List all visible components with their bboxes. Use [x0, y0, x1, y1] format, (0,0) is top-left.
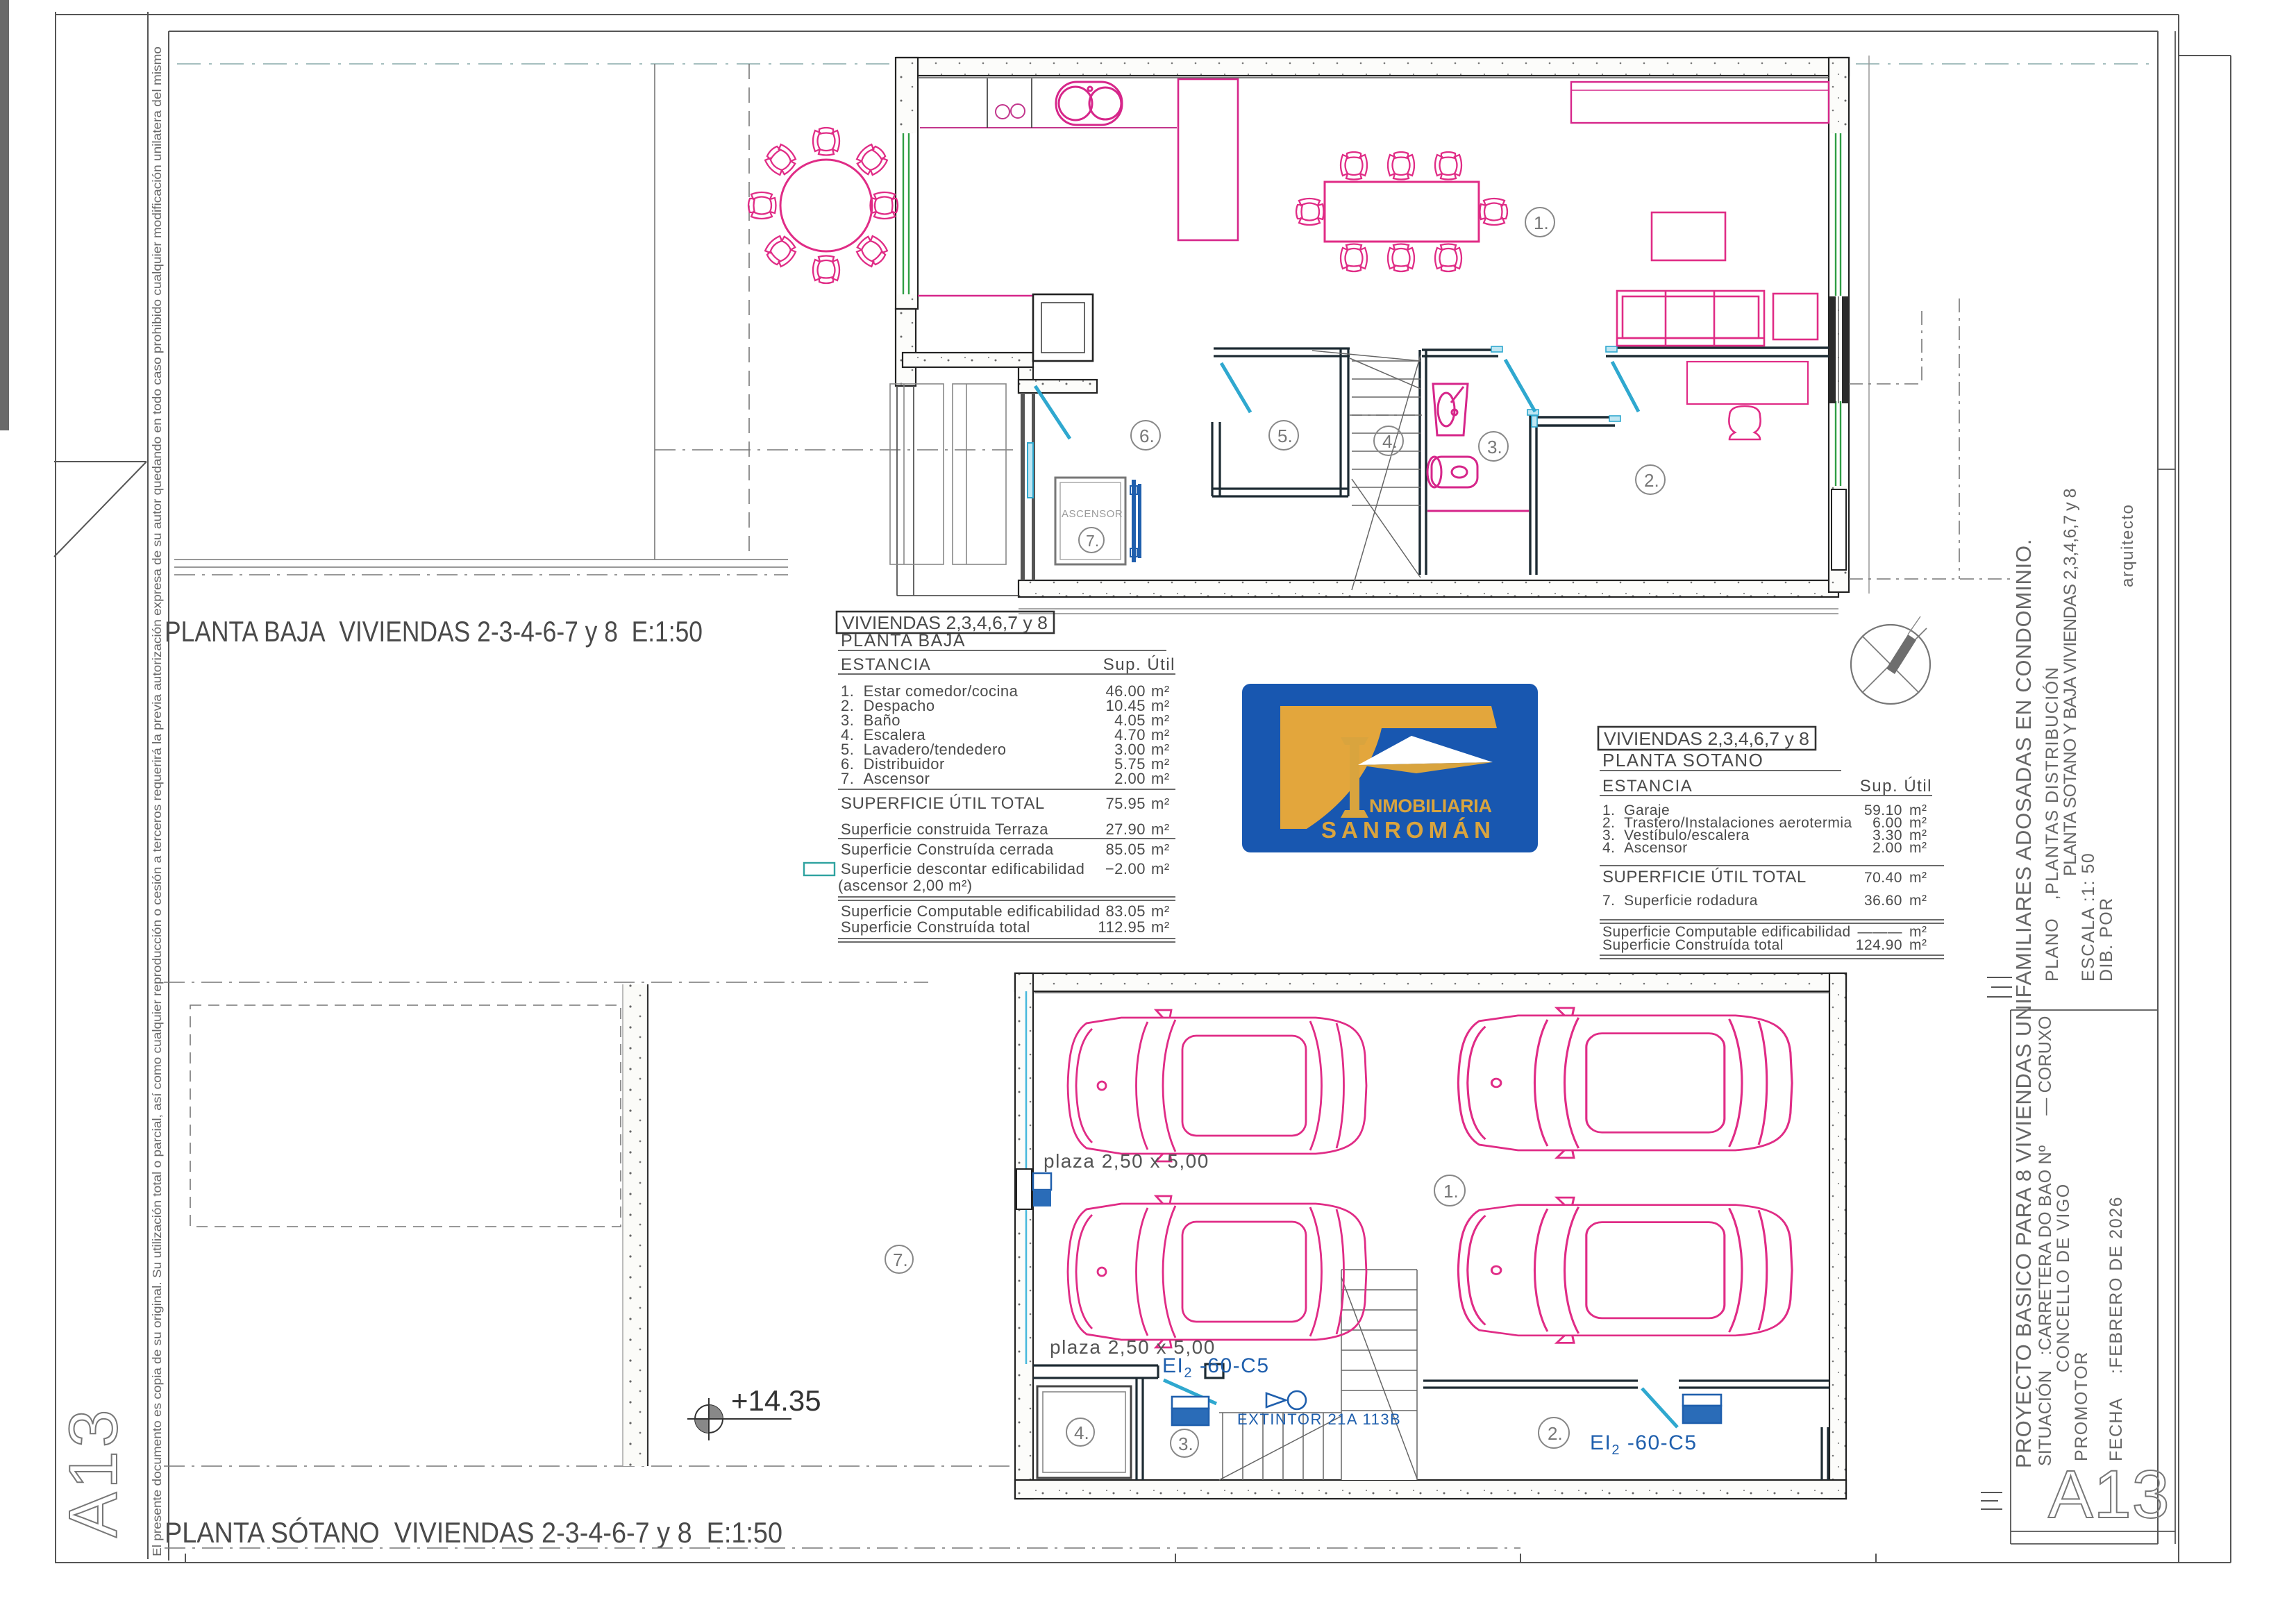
svg-text:SUPERFICIE ÚTIL TOTAL: SUPERFICIE ÚTIL TOTAL [841, 794, 1045, 813]
svg-text:3.: 3. [1178, 1433, 1193, 1454]
svg-text:m²: m² [1909, 840, 1927, 856]
svg-text:FECHA :FEBRERO DE 2026: FECHA :FEBRERO DE 2026 [2106, 1196, 2126, 1461]
svg-text:arquitecto: arquitecto [2118, 504, 2137, 587]
svg-text:Sup. Útil: Sup. Útil [1103, 655, 1175, 674]
svg-text:4.: 4. [1382, 431, 1398, 452]
svg-text:VIVIENDAS 2,3,4,6,7 y 8: VIVIENDAS 2,3,4,6,7 y 8 [1604, 728, 1809, 749]
svg-text:7.: 7. [1086, 532, 1099, 550]
svg-text:2.: 2. [1548, 1423, 1563, 1444]
svg-text:m²: m² [1151, 918, 1170, 936]
svg-text:EI2 -60-C5: EI2 -60-C5 [1162, 1354, 1270, 1381]
svg-text:EI2 -60-C5: EI2 -60-C5 [1590, 1431, 1698, 1458]
svg-text:7. Ascensor: 7. Ascensor [841, 770, 930, 787]
svg-text:Superficie construida Terraza: Superficie construida Terraza [841, 821, 1048, 838]
svg-text:CONCELLO DE VIGO: CONCELLO DE VIGO [2054, 1183, 2073, 1372]
svg-text:A13: A13 [2048, 1456, 2170, 1532]
svg-text:SITUACIÓN :CARRETERA DO BAO: SITUACIÓN :CARRETERA DO BAO Nº — CORUXO [2035, 1015, 2055, 1466]
svg-text:Superficie Construída total: Superficie Construída total [841, 918, 1030, 936]
svg-text:PLANO ,PLANTAS DISTRIBUCIÓN: PLANO ,PLANTAS DISTRIBUCIÓN [2042, 666, 2062, 982]
svg-text:m²: m² [1909, 870, 1927, 886]
svg-text:m²: m² [1151, 821, 1170, 838]
svg-text:PROMOTOR: PROMOTOR [2072, 1351, 2091, 1461]
svg-text:4.: 4. [1074, 1422, 1089, 1443]
svg-text:Superficie Construída cerrada: Superficie Construída cerrada [841, 841, 1054, 858]
svg-text:PLANTA BAJA: PLANTA BAJA [841, 631, 966, 650]
svg-text:El presente documento es copia: El presente documento es copia de su ori… [150, 47, 164, 1556]
svg-text:2.00: 2.00 [1872, 840, 1902, 856]
svg-text:(ascensor 2,00 m²): (ascensor 2,00 m²) [838, 877, 973, 894]
svg-text:PROYECTO BASICO PARA 8 VIVIEND: PROYECTO BASICO PARA 8 VIVIENDAS UNIFAMI… [2011, 538, 2036, 1468]
svg-text:2.00: 2.00 [1114, 770, 1146, 787]
svg-text:4. Ascensor: 4. Ascensor [1602, 840, 1688, 856]
svg-text:plaza 2,50 x 5,00: plaza 2,50 x 5,00 [1050, 1336, 1216, 1358]
svg-text:ESTANCIA: ESTANCIA [1602, 777, 1693, 796]
svg-text:−2.00: −2.00 [1105, 860, 1146, 877]
svg-text:A13: A13 [55, 1406, 131, 1538]
svg-text:Superficie descontar edificabi: Superficie descontar edificabilidad [841, 860, 1084, 877]
svg-text:ESTANCIA: ESTANCIA [841, 655, 931, 674]
svg-text:1.: 1. [1534, 212, 1549, 233]
svg-text:3.: 3. [1487, 437, 1502, 457]
svg-text:SUPERFICIE ÚTIL TOTAL: SUPERFICIE ÚTIL TOTAL [1602, 868, 1807, 886]
svg-text:PLANTA SOTANO Y BAJA VIVIENDAS: PLANTA SOTANO Y BAJA VIVIENDAS 2,3,4,6,7… [2061, 487, 2080, 876]
svg-text:ESCALA :1: 50: ESCALA :1: 50 [2079, 852, 2098, 982]
svg-text:NMOBILIARIA: NMOBILIARIA [1369, 796, 1493, 816]
svg-text:m²: m² [1909, 893, 1927, 909]
svg-text:7. Superficie rodadura: 7. Superficie rodadura [1602, 893, 1758, 909]
svg-text:m²: m² [1151, 841, 1170, 858]
svg-text:PLANTA SOTANO: PLANTA SOTANO [1602, 750, 1763, 771]
svg-text:75.95: 75.95 [1105, 795, 1146, 812]
svg-text:DIB. POR: DIB. POR [2097, 897, 2116, 982]
svg-text:112.95: 112.95 [1098, 918, 1146, 936]
svg-text:1.: 1. [1443, 1181, 1459, 1202]
svg-text:27.90: 27.90 [1105, 821, 1146, 838]
svg-text:PLANTA SÓTANO VIVIENDAS 2-3-4: PLANTA SÓTANO VIVIENDAS 2-3-4-6-7 y 8 E:… [165, 1516, 782, 1549]
svg-text:83.05: 83.05 [1105, 902, 1146, 920]
svg-text:EXTINTOR 21A 113B: EXTINTOR 21A 113B [1237, 1411, 1401, 1428]
svg-text:m²: m² [1151, 795, 1170, 812]
svg-text:Superficie Construída total: Superficie Construída total [1602, 937, 1784, 953]
svg-text:m²: m² [1151, 860, 1170, 877]
svg-text:Superficie Computable edificab: Superficie Computable edificabilidad [841, 902, 1100, 920]
svg-text:2.: 2. [1644, 470, 1659, 491]
svg-text:6.: 6. [1139, 426, 1155, 446]
svg-text:PLANTA BAJA VIVIENDAS 2-3-4-6: PLANTA BAJA VIVIENDAS 2-3-4-6-7 y 8 E:1:… [165, 615, 703, 648]
svg-text:+14.35: +14.35 [731, 1384, 821, 1417]
svg-text:plaza 2,50 x 5,00: plaza 2,50 x 5,00 [1044, 1150, 1209, 1172]
svg-text:SANROMÁN: SANROMÁN [1321, 817, 1492, 843]
svg-text:Sup. Útil: Sup. Útil [1860, 777, 1932, 796]
svg-text:5.: 5. [1277, 426, 1293, 446]
svg-text:VIVIENDAS 2,3,4,6,7 y 8: VIVIENDAS 2,3,4,6,7 y 8 [842, 612, 1048, 633]
svg-text:ASCENSOR: ASCENSOR [1062, 508, 1123, 520]
svg-text:m²: m² [1151, 902, 1170, 920]
svg-text:70.40: 70.40 [1864, 870, 1902, 886]
svg-text:36.60: 36.60 [1864, 893, 1902, 909]
svg-text:124.90: 124.90 [1856, 937, 1902, 953]
svg-text:7.: 7. [893, 1250, 908, 1270]
svg-text:85.05: 85.05 [1105, 841, 1146, 858]
svg-text:m²: m² [1151, 770, 1170, 787]
svg-text:m²: m² [1909, 937, 1927, 953]
